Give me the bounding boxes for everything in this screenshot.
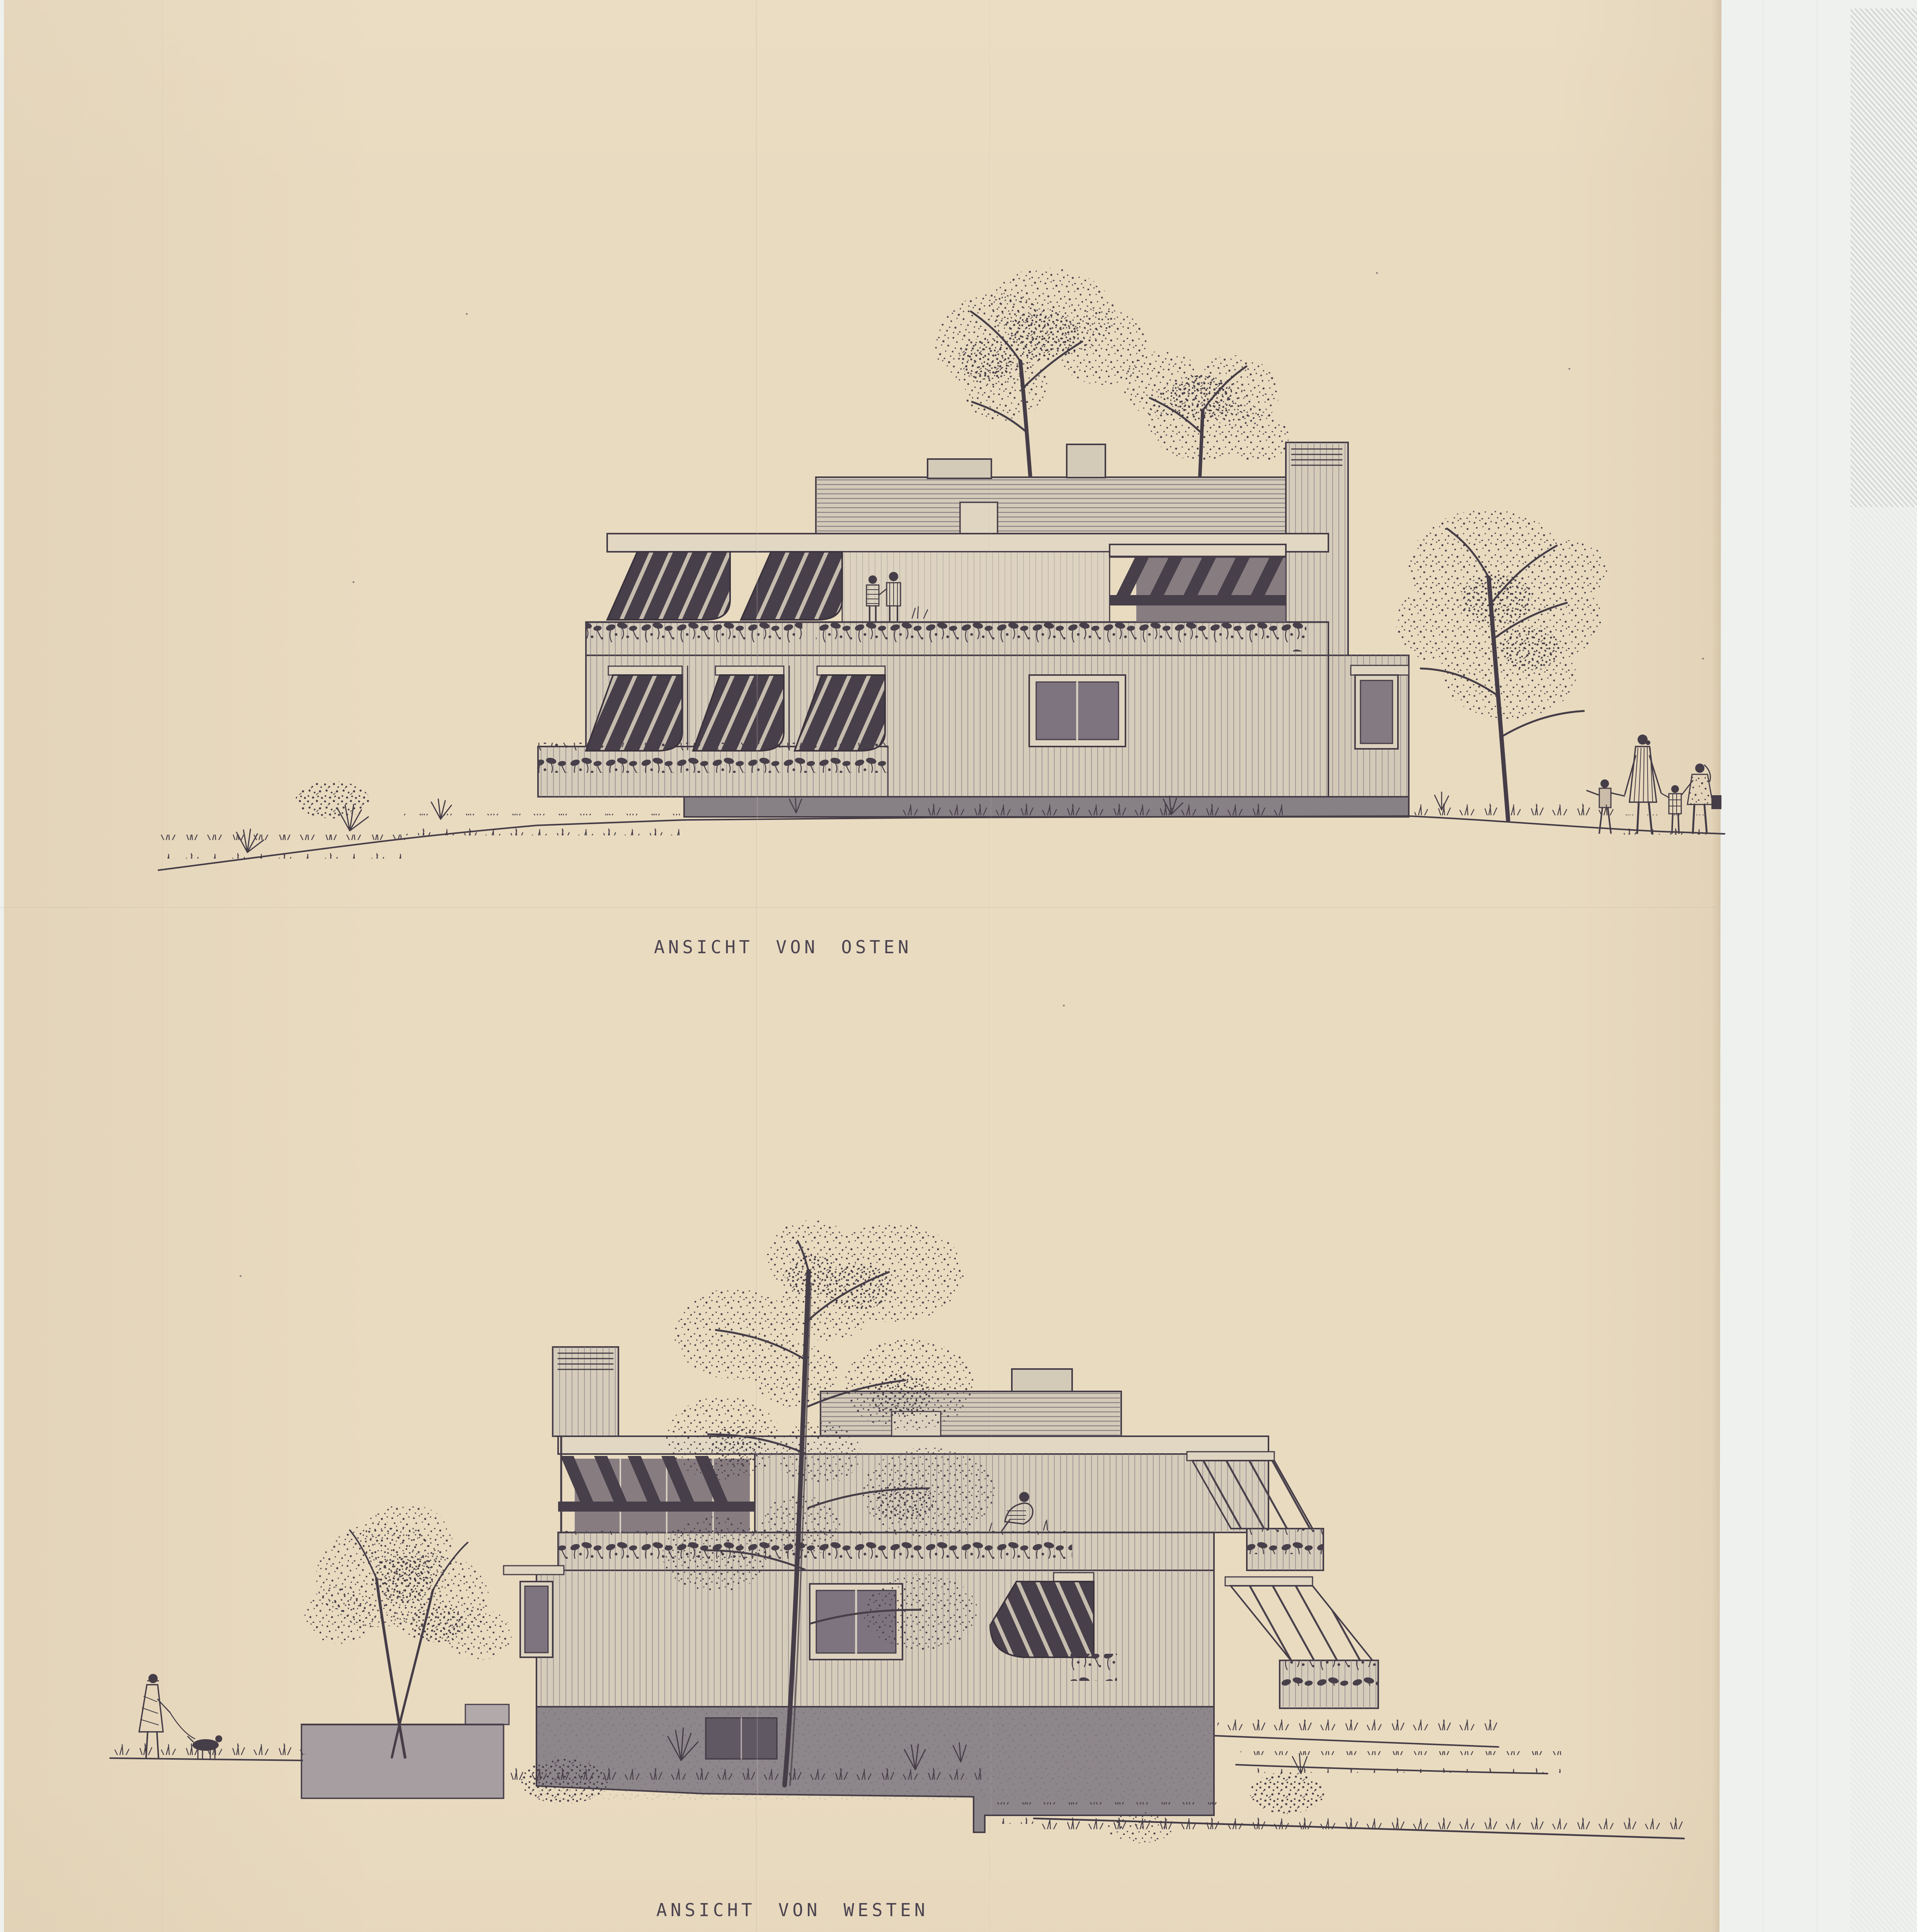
west-roof-box: [1012, 1369, 1072, 1391]
dust-speck: [1702, 658, 1704, 660]
fold-crease-vertical-main: [756, 0, 758, 1932]
elevation-drawings-svg: [0, 0, 1917, 1932]
east-pergola: [1110, 544, 1286, 622]
east-roof-box-2: [1067, 444, 1105, 478]
dust-speck: [352, 581, 354, 583]
east-window-center: [1029, 675, 1125, 747]
dust-speck: [1568, 368, 1570, 370]
east-roof-box-1: [928, 459, 991, 478]
west-elevation-label: ANSICHT VON WESTEN: [656, 1900, 929, 1920]
scanned-sheet-stage: ANSICHT VON OSTEN ANSICHT VON WESTEN MEH…: [0, 0, 1917, 1932]
east-foreground-tree: [1396, 509, 1607, 820]
dust-speck: [1063, 1005, 1065, 1007]
dust-speck: [1376, 272, 1378, 274]
west-elevation-drawing: [110, 1220, 1689, 1843]
fold-crease-horizontal: [0, 907, 1716, 909]
west-light-awning-lower: [1231, 1586, 1372, 1660]
fold-crease-vertical-left: [162, 0, 164, 1932]
east-elevation-drawing: [158, 260, 1725, 870]
east-window-right: [1355, 675, 1398, 749]
east-elevation-label: ANSICHT VON OSTEN: [654, 937, 912, 957]
west-basement-door: [706, 1718, 777, 1759]
west-window-left: [520, 1582, 553, 1657]
east-awnings-lower: [586, 666, 885, 751]
west-chimney: [553, 1347, 618, 1436]
fold-crease-vertical-right: [989, 0, 991, 1932]
east-awnings-upper: [607, 552, 842, 620]
dust-speck: [466, 313, 468, 315]
dust-speck: [240, 1275, 242, 1277]
